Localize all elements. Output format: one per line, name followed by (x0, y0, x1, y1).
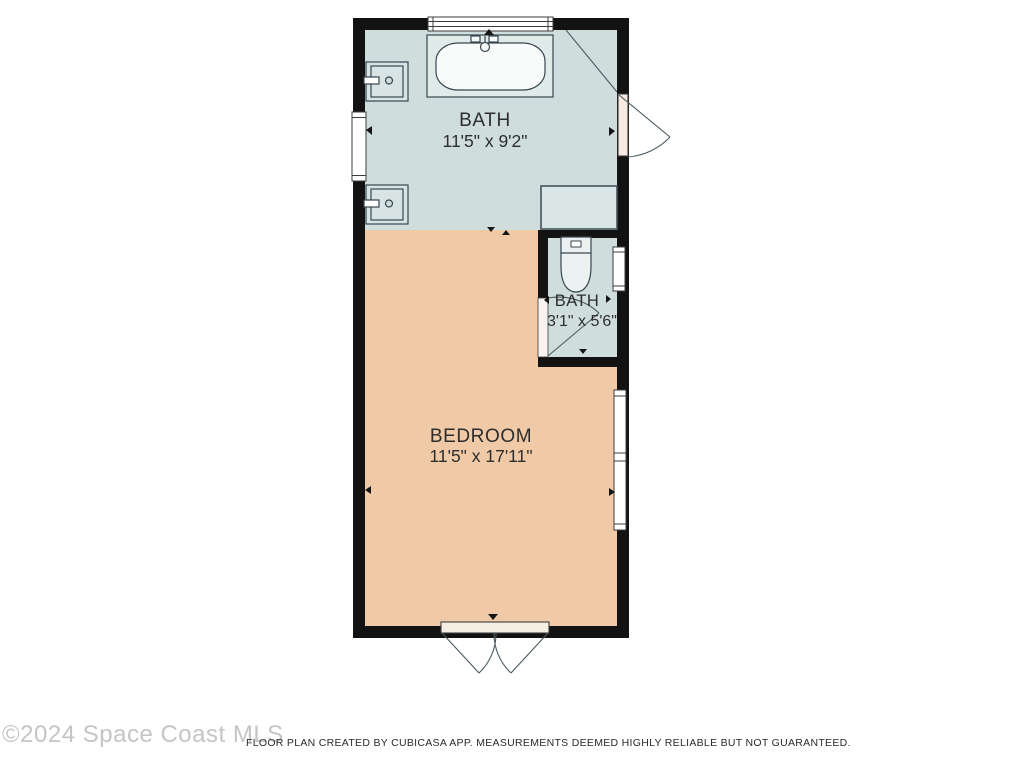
door-slab (441, 622, 549, 633)
disclaimer: FLOOR PLAN CREATED BY CUBICASA APP. MEAS… (246, 737, 851, 749)
door-slab (618, 94, 628, 156)
window-bath-top (428, 17, 553, 31)
bedroom-room-dims: 11'5" x 17'11" (429, 446, 532, 466)
door-swing-arc (628, 137, 670, 157)
bathtub (427, 35, 553, 97)
window-bath-left (352, 112, 366, 181)
bath-room-dims: 11'5" x 9'2" (443, 131, 528, 151)
shower-enclosure (541, 186, 617, 229)
toilet (561, 237, 591, 292)
floorplan-page: BATH 11'5" x 9'2" BATH 3'1" x 5'6" BEDRO… (0, 0, 1024, 768)
small-bath-room-dims: 3'1" x 5'6" (547, 313, 617, 330)
bedroom-room-name: BEDROOM (430, 426, 532, 447)
floorplan-drawing: BATH 11'5" x 9'2" BATH 3'1" x 5'6" BEDRO… (0, 0, 1024, 768)
bedroom-label: BEDROOM 11'5" x 17'11" (429, 426, 532, 466)
window-small-bath (613, 247, 625, 291)
watermark: ©2024 Space Coast MLS (2, 721, 284, 749)
window-bedroom-right (614, 390, 626, 530)
small-bath-room-name: BATH (555, 292, 599, 310)
door-bedroom-double (441, 622, 549, 673)
sink-vanity-bottom (364, 185, 408, 224)
bath-room-name: BATH (459, 110, 511, 131)
sink-vanity-top (364, 62, 408, 101)
